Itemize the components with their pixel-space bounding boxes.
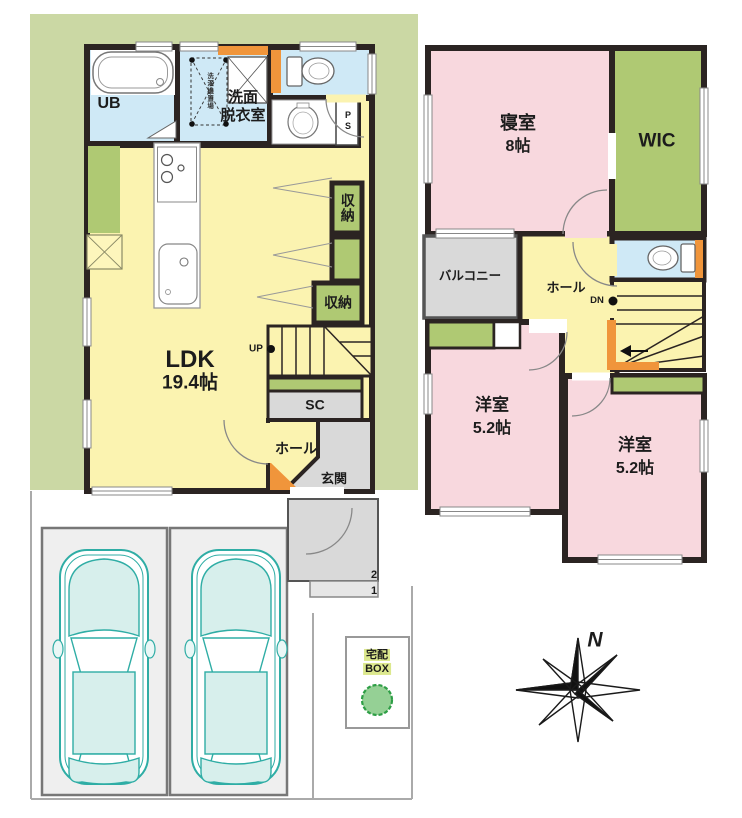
room-bedroom [428, 48, 612, 234]
car-icon [53, 550, 155, 784]
toilet-icon-2f [648, 244, 695, 272]
floor2-rooms [424, 48, 704, 560]
stair-rail-orange-h [607, 362, 659, 370]
room-western-1 [428, 322, 562, 512]
floorplan-graphics [0, 0, 742, 818]
opening-bedroom [565, 230, 607, 238]
counter-box [494, 322, 520, 348]
opening-western-2 [572, 373, 610, 381]
sc-shelf [268, 378, 362, 391]
closet-upper [332, 183, 362, 233]
opening-wic [608, 133, 616, 179]
dn-marker-dot [609, 297, 618, 306]
compass-icon [516, 638, 640, 742]
kitchen-sink-icon [159, 244, 197, 304]
closet-western-1 [428, 322, 494, 348]
toilet-icon [287, 57, 334, 86]
room-western-2 [565, 376, 704, 560]
opening-hall-ldk [265, 423, 272, 463]
room-wic [612, 48, 704, 234]
car-icon [185, 550, 287, 784]
toilet-door-orange [271, 50, 281, 93]
kitchen-counter-strip [88, 146, 120, 233]
refrigerator-space [87, 235, 122, 269]
up-marker-dot [267, 345, 275, 353]
tree-icon [362, 685, 392, 715]
entrance-step [310, 581, 378, 597]
hall-corridor-junction [565, 327, 614, 335]
floorplan-page: UB 洗面 脱衣室 洗濯機置場 PS 収納 収納 UP LDK 19.4帖 SC… [0, 0, 742, 818]
closet-mid [332, 237, 362, 281]
linen-cabinet-icon [228, 57, 267, 103]
closet-lower [314, 283, 362, 323]
opening-toilet-2f [609, 244, 617, 276]
room-sc [268, 391, 362, 420]
entrance-porch [288, 499, 378, 581]
cabinet-orange [218, 46, 268, 55]
opening-washroom [326, 95, 366, 103]
stove-icon [158, 147, 197, 202]
toilet2-cabinet-orange [695, 240, 703, 278]
stairs-1f [268, 326, 372, 376]
pipe-space [336, 100, 358, 145]
opening-front-door [290, 487, 344, 495]
opening-western-1 [529, 319, 567, 333]
room-balcony [424, 236, 518, 318]
room-hall-2f [520, 234, 617, 330]
closet-western-2 [612, 376, 704, 393]
bathtub-icon [91, 50, 175, 95]
